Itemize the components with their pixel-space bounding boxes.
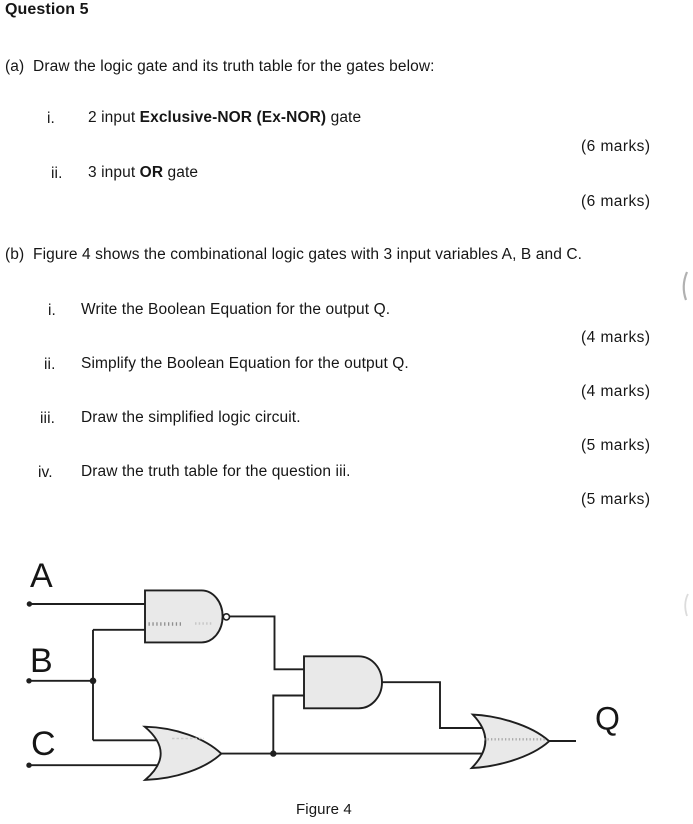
svg-text:Q: Q [595, 701, 620, 737]
svg-text:C: C [31, 725, 56, 763]
svg-text:B: B [30, 642, 53, 680]
svg-text:A: A [30, 557, 53, 595]
